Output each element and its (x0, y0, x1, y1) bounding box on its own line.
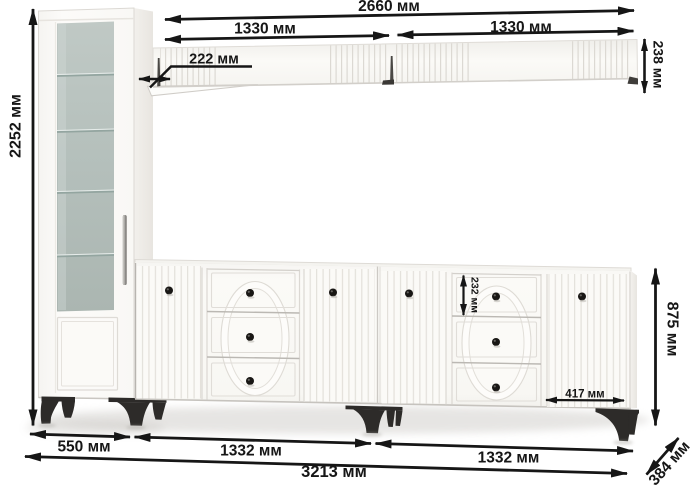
svg-text:1332 мм: 1332 мм (220, 443, 282, 460)
svg-text:238 мм: 238 мм (651, 41, 667, 89)
svg-text:1330 мм: 1330 мм (490, 19, 552, 36)
svg-text:550 мм: 550 мм (57, 439, 110, 456)
svg-text:417 мм: 417 мм (565, 389, 604, 401)
svg-text:875 мм: 875 мм (664, 302, 681, 357)
svg-text:2660 мм: 2660 мм (358, 0, 420, 15)
svg-text:222 мм: 222 мм (189, 52, 239, 68)
svg-text:3213 мм: 3213 мм (301, 463, 367, 481)
svg-text:2252 мм: 2252 мм (8, 94, 25, 158)
svg-text:232 мм: 232 мм (469, 277, 481, 313)
svg-text:1332 мм: 1332 мм (478, 450, 540, 467)
svg-text:1330 мм: 1330 мм (234, 21, 296, 38)
